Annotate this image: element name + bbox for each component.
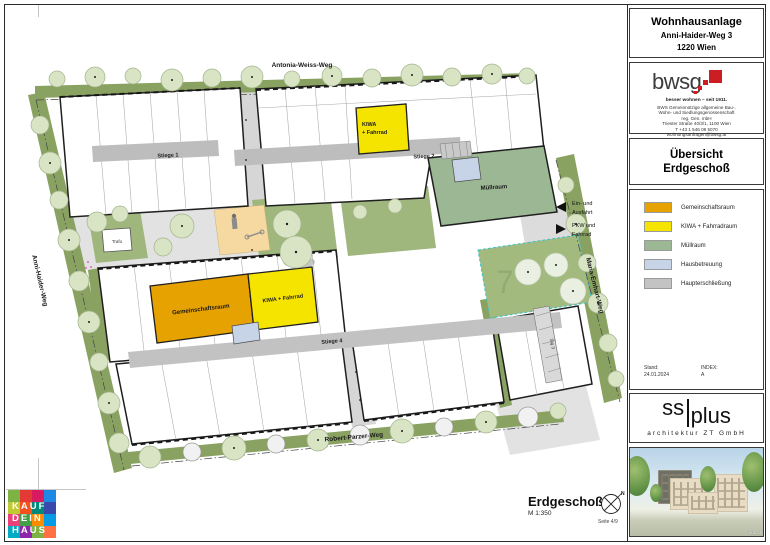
legend-label: Hausbetreuung — [681, 262, 722, 268]
sheet-title-line2: Erdgeschoß — [630, 162, 763, 176]
rendering-image: © vdx.at — [630, 448, 763, 536]
room-hausbetreuung-top — [452, 157, 481, 182]
sheet-title-line1: Übersicht — [630, 148, 763, 162]
index-value: A — [701, 372, 704, 378]
fold-mark-vertical — [38, 458, 39, 490]
entrance-note-line-3: PKW und — [572, 223, 595, 229]
label-stiege-1: Stiege 1 — [157, 152, 178, 159]
entrance-note-line-1: Ein- und — [572, 201, 593, 207]
entrance-note-line-2: Ausfahrt — [572, 210, 593, 216]
entrance-note-line-4: Fahrrad — [572, 232, 591, 238]
kdh-line-1: KAUF — [12, 501, 56, 513]
plot-7-number: 7 — [496, 264, 514, 300]
legend-label: Müllraum — [681, 243, 706, 249]
architect-block: ss plus architektur ZT GmbH — [629, 393, 764, 443]
page-number: Seite 4/9 — [598, 519, 618, 525]
bwsg-block: bwsg besser wohnen – seit 1911. BWS Geme… — [629, 62, 764, 134]
kdh-line-3: HAUS — [12, 525, 56, 537]
stand-label: Stand: — [644, 365, 658, 371]
kdh-line-2: DEIN — [12, 513, 56, 525]
legend-swatch-hausbetreuung — [644, 259, 672, 270]
legend-swatch-gemeinschaftsraum — [644, 202, 672, 213]
architect-subtitle: architektur ZT GmbH — [630, 430, 763, 437]
bwsg-info-line: wohnungsanfragen@bwsg.at — [630, 132, 763, 137]
legend-label: KIWA + Fahrradraum — [681, 224, 737, 230]
label-stiege-2: Stiege 2 — [413, 153, 434, 160]
bwsg-info: BWS Gemeinnützige allgemeine Bau-, Wohn-… — [630, 105, 763, 137]
playground — [214, 205, 270, 255]
kauf-dein-haus-logo: KAUF DEIN HAUS — [8, 490, 56, 538]
rendering-credit: © vdx.at — [744, 530, 761, 535]
project-name: Wohnhausanlage — [630, 16, 763, 28]
legend-item: Haupterschließung — [644, 274, 763, 293]
project-city: 1220 Wien — [630, 43, 763, 52]
project-title-block: Wohnhausanlage Anni-Haider-Weg 3 1220 Wi… — [629, 8, 764, 58]
legend-block: Gemeinschaftsraum KIWA + Fahrradraum Mül… — [629, 189, 764, 390]
legend-label: Haupterschließung — [681, 281, 731, 287]
ssplus-logo-right: plus — [691, 405, 731, 427]
legend-item: KIWA + Fahrradraum — [644, 217, 763, 236]
north-label: N — [621, 491, 625, 497]
rendering-block: © vdx.at — [629, 447, 764, 537]
ssplus-logo-left: ss — [662, 397, 684, 419]
legend: Gemeinschaftsraum KIWA + Fahrradraum Mül… — [644, 198, 763, 293]
legend-swatch-muellraum — [644, 240, 672, 251]
legend-item: Gemeinschaftsraum — [644, 198, 763, 217]
title-column-divider — [627, 4, 628, 541]
label-kiwa-top-1: KIWA — [362, 122, 376, 128]
bwsg-tagline: besser wohnen – seit 1911. — [630, 98, 763, 103]
fold-mark-horizontal — [6, 489, 86, 490]
street-label-left: Anni-Haider-Weg — [30, 254, 49, 307]
north-arrow-icon: N — [602, 491, 626, 514]
plan-title: Erdgeschoß — [528, 494, 603, 509]
fold-mark-top — [38, 5, 39, 17]
room-kiwa-top — [356, 104, 409, 154]
plan-scale: M 1:350 — [528, 510, 552, 517]
label-trafo: Trafo — [112, 239, 123, 244]
legend-swatch-kiwa — [644, 221, 672, 232]
project-address: Anni-Haider-Weg 3 — [630, 31, 763, 40]
legend-swatch-haupterschliessung — [644, 278, 672, 289]
legend-item: Hausbetreuung — [644, 255, 763, 274]
index-label: INDEX: — [701, 365, 718, 371]
legend-label: Gemeinschaftsraum — [681, 205, 735, 211]
stand-value: 24.01.2024 — [644, 372, 669, 378]
street-label-top: Antonia-Weiss-Weg — [272, 62, 333, 69]
ssplus-logo-bar — [687, 399, 689, 427]
legend-item: Müllraum — [644, 236, 763, 255]
label-kiwa-top-2: + Fahrrad — [362, 130, 387, 136]
revision-block: Stand: 24.01.2024 INDEX: A — [644, 365, 718, 379]
sheet-title-block: Übersicht Erdgeschoß — [629, 138, 764, 185]
ssplus-logo: ss plus — [630, 397, 763, 427]
room-hausbetreuung-mid — [232, 322, 260, 344]
